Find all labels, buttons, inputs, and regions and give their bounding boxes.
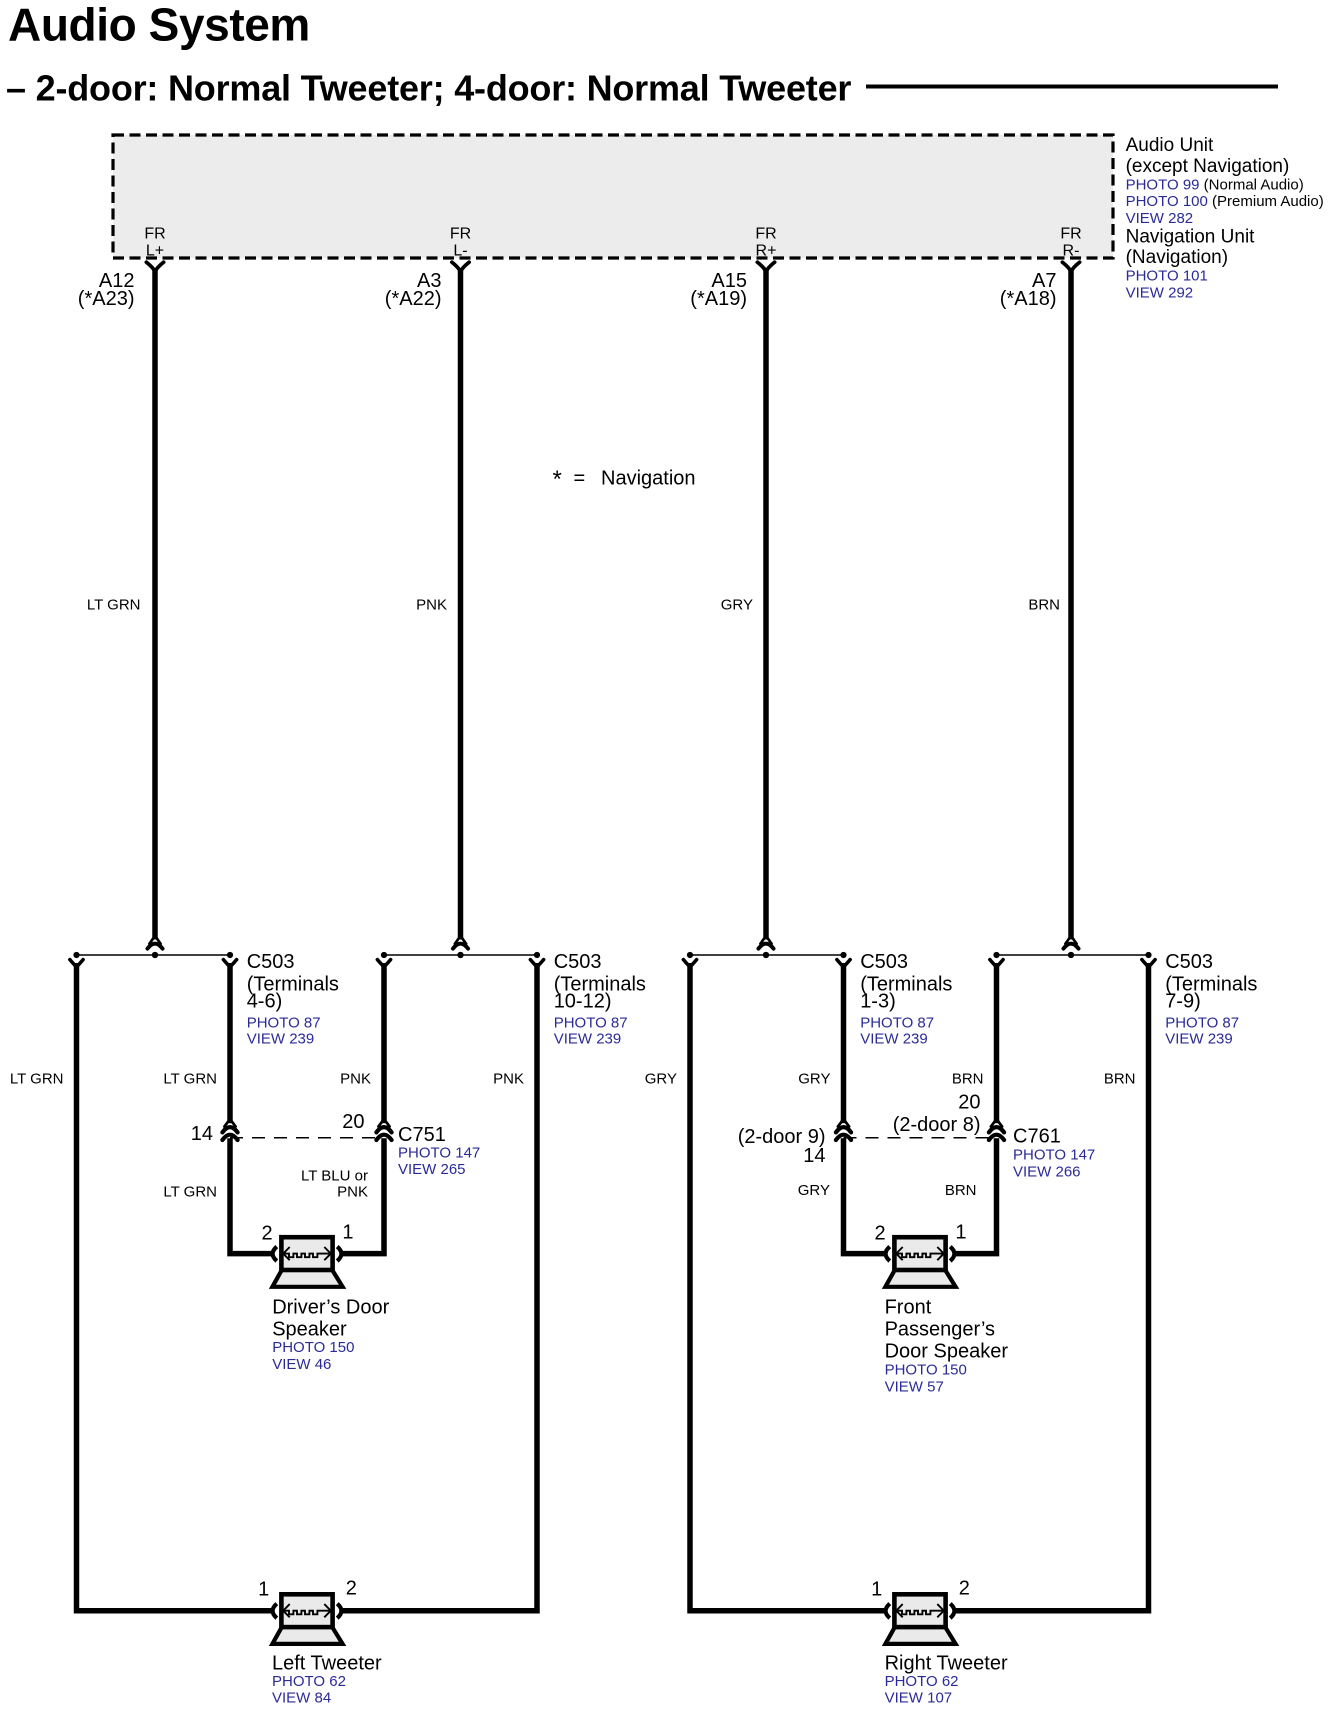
svg-text:Left Tweeter: Left Tweeter <box>272 1653 382 1675</box>
svg-text:VIEW 265: VIEW 265 <box>398 1161 466 1178</box>
svg-text:PHOTO 101: PHOTO 101 <box>1126 268 1208 285</box>
svg-text:7-9): 7-9) <box>1165 991 1201 1013</box>
svg-text:BRN: BRN <box>1104 1071 1136 1088</box>
svg-text:VIEW 239: VIEW 239 <box>1165 1031 1233 1048</box>
svg-text:Navigation Unit: Navigation Unit <box>1126 226 1256 247</box>
svg-text:Passenger’s: Passenger’s <box>885 1319 995 1341</box>
svg-text:C503: C503 <box>554 951 602 973</box>
svg-text:C503: C503 <box>860 951 908 973</box>
svg-text:– 2-door: Normal Tweeter; 4-do: – 2-door: Normal Tweeter; 4-door: Normal… <box>6 68 851 109</box>
svg-text:R-: R- <box>1063 243 1080 260</box>
svg-text:L-: L- <box>453 243 467 260</box>
svg-text:PHOTO 87: PHOTO 87 <box>554 1015 628 1032</box>
svg-text:(*A22): (*A22) <box>385 288 442 310</box>
svg-text:*: * <box>553 466 562 493</box>
svg-text:2: 2 <box>261 1222 272 1244</box>
svg-text:(*A18): (*A18) <box>1000 288 1057 310</box>
svg-text:PHOTO 62: PHOTO 62 <box>885 1673 959 1690</box>
svg-text:PHOTO 99 (Normal Audio): PHOTO 99 (Normal Audio) <box>1126 176 1304 193</box>
svg-text:Audio Unit: Audio Unit <box>1126 135 1214 156</box>
svg-text:PNK: PNK <box>337 1184 368 1201</box>
svg-text:4-6): 4-6) <box>247 991 283 1013</box>
svg-text:PHOTO 87: PHOTO 87 <box>1165 1015 1239 1032</box>
svg-text:(*A23): (*A23) <box>78 288 135 310</box>
svg-text:PHOTO 87: PHOTO 87 <box>860 1015 934 1032</box>
svg-text:Audio System: Audio System <box>8 0 310 51</box>
svg-text:BRN: BRN <box>945 1182 977 1199</box>
svg-text:PHOTO 150: PHOTO 150 <box>885 1362 967 1379</box>
svg-text:2: 2 <box>959 1578 970 1600</box>
svg-text:VIEW 84: VIEW 84 <box>272 1690 331 1707</box>
svg-text:L+: L+ <box>146 243 164 260</box>
svg-text:C503: C503 <box>247 951 295 973</box>
svg-text:14: 14 <box>803 1145 825 1167</box>
svg-text:BRN: BRN <box>952 1071 984 1088</box>
svg-text:C503: C503 <box>1165 951 1213 973</box>
svg-text:Front: Front <box>885 1297 932 1319</box>
svg-text:PHOTO 147: PHOTO 147 <box>1013 1147 1095 1164</box>
svg-text:(2-door 8): (2-door 8) <box>893 1114 981 1136</box>
svg-text:(except Navigation): (except Navigation) <box>1126 156 1290 177</box>
svg-text:10-12): 10-12) <box>554 991 612 1013</box>
svg-text:Right Tweeter: Right Tweeter <box>885 1653 1008 1675</box>
svg-text:FR: FR <box>1060 226 1081 243</box>
svg-text:LT GRN: LT GRN <box>163 1184 217 1201</box>
svg-text:VIEW 239: VIEW 239 <box>860 1031 928 1048</box>
svg-text:VIEW 266: VIEW 266 <box>1013 1164 1081 1181</box>
svg-text:Driver’s Door: Driver’s Door <box>272 1297 389 1319</box>
svg-text:VIEW 107: VIEW 107 <box>885 1690 953 1707</box>
svg-text:(*A19): (*A19) <box>690 288 747 310</box>
svg-text:GRY: GRY <box>798 1071 830 1088</box>
svg-text:GRY: GRY <box>721 597 753 614</box>
svg-text:1: 1 <box>258 1579 269 1601</box>
svg-text:PHOTO 150: PHOTO 150 <box>272 1339 354 1356</box>
svg-text:1-3): 1-3) <box>860 991 896 1013</box>
svg-text:20: 20 <box>342 1111 364 1133</box>
svg-text:PHOTO 147: PHOTO 147 <box>398 1145 480 1162</box>
svg-text:VIEW 239: VIEW 239 <box>554 1031 622 1048</box>
svg-text:GRY: GRY <box>645 1071 677 1088</box>
svg-text:R+: R+ <box>756 243 777 260</box>
svg-text:Navigation: Navigation <box>601 468 696 490</box>
svg-text:VIEW 57: VIEW 57 <box>885 1379 944 1396</box>
svg-text:1: 1 <box>871 1579 882 1601</box>
svg-text:LT GRN: LT GRN <box>10 1071 64 1088</box>
svg-text:2: 2 <box>874 1222 885 1244</box>
svg-text:Speaker: Speaker <box>272 1319 347 1341</box>
svg-text:FR: FR <box>450 226 471 243</box>
svg-text:PHOTO 87: PHOTO 87 <box>247 1015 321 1032</box>
svg-text:C751: C751 <box>398 1124 446 1146</box>
svg-text:C761: C761 <box>1013 1126 1061 1148</box>
svg-text:=: = <box>574 468 586 490</box>
svg-text:VIEW 46: VIEW 46 <box>272 1356 331 1373</box>
svg-text:FR: FR <box>144 226 165 243</box>
svg-text:FR: FR <box>755 226 776 243</box>
svg-text:BRN: BRN <box>1028 597 1060 614</box>
svg-text:LT GRN: LT GRN <box>163 1071 217 1088</box>
svg-text:14: 14 <box>191 1123 213 1145</box>
svg-text:1: 1 <box>955 1222 966 1244</box>
svg-text:LT GRN: LT GRN <box>87 597 141 614</box>
svg-text:VIEW 292: VIEW 292 <box>1126 284 1194 301</box>
svg-text:PHOTO 100 (Premium Audio): PHOTO 100 (Premium Audio) <box>1126 193 1324 210</box>
svg-text:LT BLU or: LT BLU or <box>301 1168 368 1185</box>
svg-text:20: 20 <box>958 1092 980 1114</box>
svg-text:PNK: PNK <box>493 1071 524 1088</box>
svg-text:VIEW 282: VIEW 282 <box>1126 210 1194 227</box>
svg-text:2: 2 <box>346 1578 357 1600</box>
svg-text:PHOTO 62: PHOTO 62 <box>272 1673 346 1690</box>
svg-text:1: 1 <box>342 1222 353 1244</box>
svg-text:Door Speaker: Door Speaker <box>885 1341 1009 1363</box>
svg-text:PNK: PNK <box>340 1071 371 1088</box>
svg-text:VIEW 239: VIEW 239 <box>247 1031 315 1048</box>
svg-text:(Navigation): (Navigation) <box>1126 247 1228 268</box>
svg-text:PNK: PNK <box>416 597 447 614</box>
svg-text:GRY: GRY <box>798 1182 830 1199</box>
